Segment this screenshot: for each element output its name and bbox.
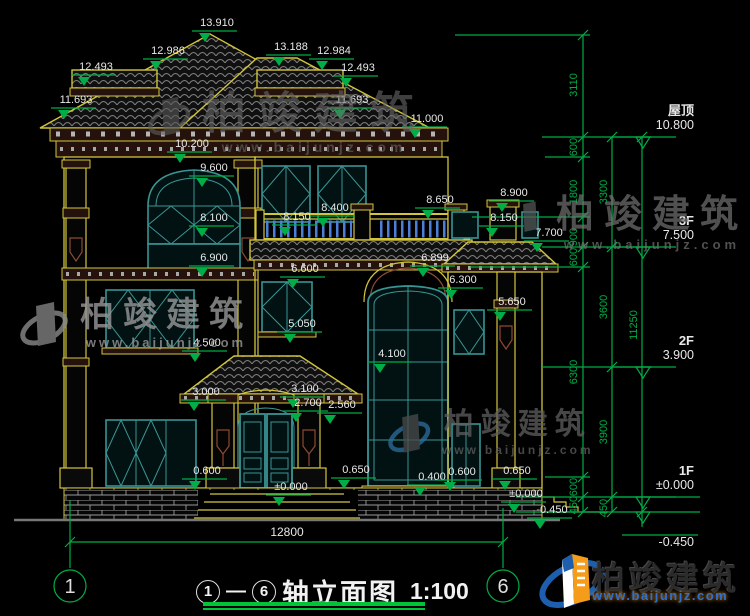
window-3f-left [144, 170, 244, 276]
entry-door [240, 414, 292, 488]
svg-text:8.150: 8.150 [283, 211, 311, 223]
svg-text:8.150: 8.150 [490, 212, 518, 224]
svg-text:-0.450: -0.450 [659, 535, 694, 549]
chain-dimension-label: 3900 [598, 420, 610, 444]
svg-text:3.100: 3.100 [291, 383, 319, 395]
svg-text:10.800: 10.800 [656, 118, 694, 132]
svg-text:屋顶: 屋顶 [668, 103, 694, 118]
svg-text:12.986: 12.986 [151, 45, 185, 57]
svg-text:±0.000: ±0.000 [509, 488, 543, 500]
chain-dimension-label: 600 [568, 248, 580, 266]
svg-text:3F: 3F [679, 213, 694, 228]
title-underline [203, 602, 425, 606]
pilaster-left [60, 160, 92, 488]
svg-text:8.900: 8.900 [500, 187, 528, 199]
main-roof [40, 34, 448, 157]
chain-dimension-label: 3600 [598, 295, 610, 319]
svg-text:13.910: 13.910 [200, 17, 234, 29]
chain-dimension-label: 3300 [598, 180, 610, 204]
floor-level-marker: 3F7.500 [612, 213, 694, 258]
chain-dimension-label: 3110 [568, 73, 580, 97]
chain-dimension-label: 450 [568, 496, 580, 514]
window-stair-tall [362, 286, 454, 492]
svg-text:13.188: 13.188 [274, 41, 308, 53]
title-axis-start: 1 [196, 580, 220, 604]
floor-level-marker: -0.450 [636, 512, 694, 549]
svg-text:10.200: 10.200 [175, 138, 209, 150]
bottom-dimension-label: 12800 [270, 525, 304, 539]
svg-text:8.100: 8.100 [200, 212, 228, 224]
svg-text:7.500: 7.500 [663, 228, 694, 242]
chain-dimension-label: 6300 [568, 360, 580, 384]
svg-text:11.693: 11.693 [336, 94, 369, 106]
floor-level-marker: 1F±0.000 [612, 463, 694, 508]
svg-text:7.700: 7.700 [535, 227, 563, 239]
svg-text:0.650: 0.650 [503, 465, 531, 477]
svg-text:11.000: 11.000 [411, 113, 444, 125]
window-2f-right [454, 310, 484, 354]
right-wing [442, 212, 558, 488]
window-2f-left [102, 290, 198, 354]
svg-text:±0.000: ±0.000 [274, 481, 308, 493]
svg-text:5.050: 5.050 [288, 318, 316, 330]
svg-text:6.899: 6.899 [421, 252, 449, 264]
svg-text:1F: 1F [679, 463, 694, 478]
svg-text:5.650: 5.650 [498, 296, 526, 308]
svg-text:3.900: 3.900 [663, 348, 694, 362]
floor-level-marker: 屋顶10.800 [612, 103, 694, 148]
chain-dimension-label: 900 [568, 228, 580, 246]
title-dash: — [226, 580, 246, 603]
svg-text:0.650: 0.650 [342, 464, 370, 476]
dimension-chain-right [455, 35, 700, 535]
svg-text:12.493: 12.493 [341, 62, 375, 74]
scale-label: 1:100 [410, 578, 469, 605]
chain-dimension-label: 600 [568, 138, 580, 156]
svg-text:9.600: 9.600 [200, 162, 228, 174]
brand-logo-url: www.baijunjz.com [592, 588, 728, 603]
elevation-drawing: 12800 1 6 13.91012.98613.18812.98412.493… [0, 0, 750, 616]
svg-text:12.984: 12.984 [317, 45, 351, 57]
svg-text:6.900: 6.900 [200, 252, 228, 264]
window-1f-left [106, 420, 196, 486]
svg-text:11.693: 11.693 [60, 94, 93, 106]
title-underline-2 [203, 608, 425, 610]
title-axis-end: 6 [252, 580, 276, 604]
svg-text:0.600: 0.600 [193, 465, 221, 477]
svg-text:6: 6 [497, 576, 508, 598]
svg-text:2.700: 2.700 [294, 397, 322, 409]
svg-text:1: 1 [64, 576, 75, 598]
svg-text:4.500: 4.500 [193, 337, 221, 349]
svg-text:4.100: 4.100 [378, 348, 406, 360]
svg-text:6.600: 6.600 [291, 263, 319, 275]
svg-text:3.000: 3.000 [192, 386, 220, 398]
svg-text:8.400: 8.400 [321, 202, 349, 214]
chain-dimension-label: 600 [568, 478, 580, 496]
svg-text:0.600: 0.600 [448, 466, 476, 478]
svg-text:8.650: 8.650 [426, 194, 454, 206]
svg-text:6.300: 6.300 [449, 274, 477, 286]
svg-text:2.560: 2.560 [328, 399, 356, 411]
chain-dimension-label: 1800 [568, 180, 580, 204]
svg-text:±0.000: ±0.000 [656, 478, 694, 492]
svg-text:-0.450: -0.450 [536, 504, 567, 516]
svg-text:12.493: 12.493 [79, 61, 113, 73]
chain-dimension-label: 11250 [628, 310, 640, 340]
svg-text:2F: 2F [679, 333, 694, 348]
svg-text:0.400: 0.400 [418, 471, 446, 483]
floor-level-marker: 2F3.900 [612, 333, 694, 378]
cad-canvas: 12800 1 6 13.91012.98613.18812.98412.493… [0, 0, 750, 616]
